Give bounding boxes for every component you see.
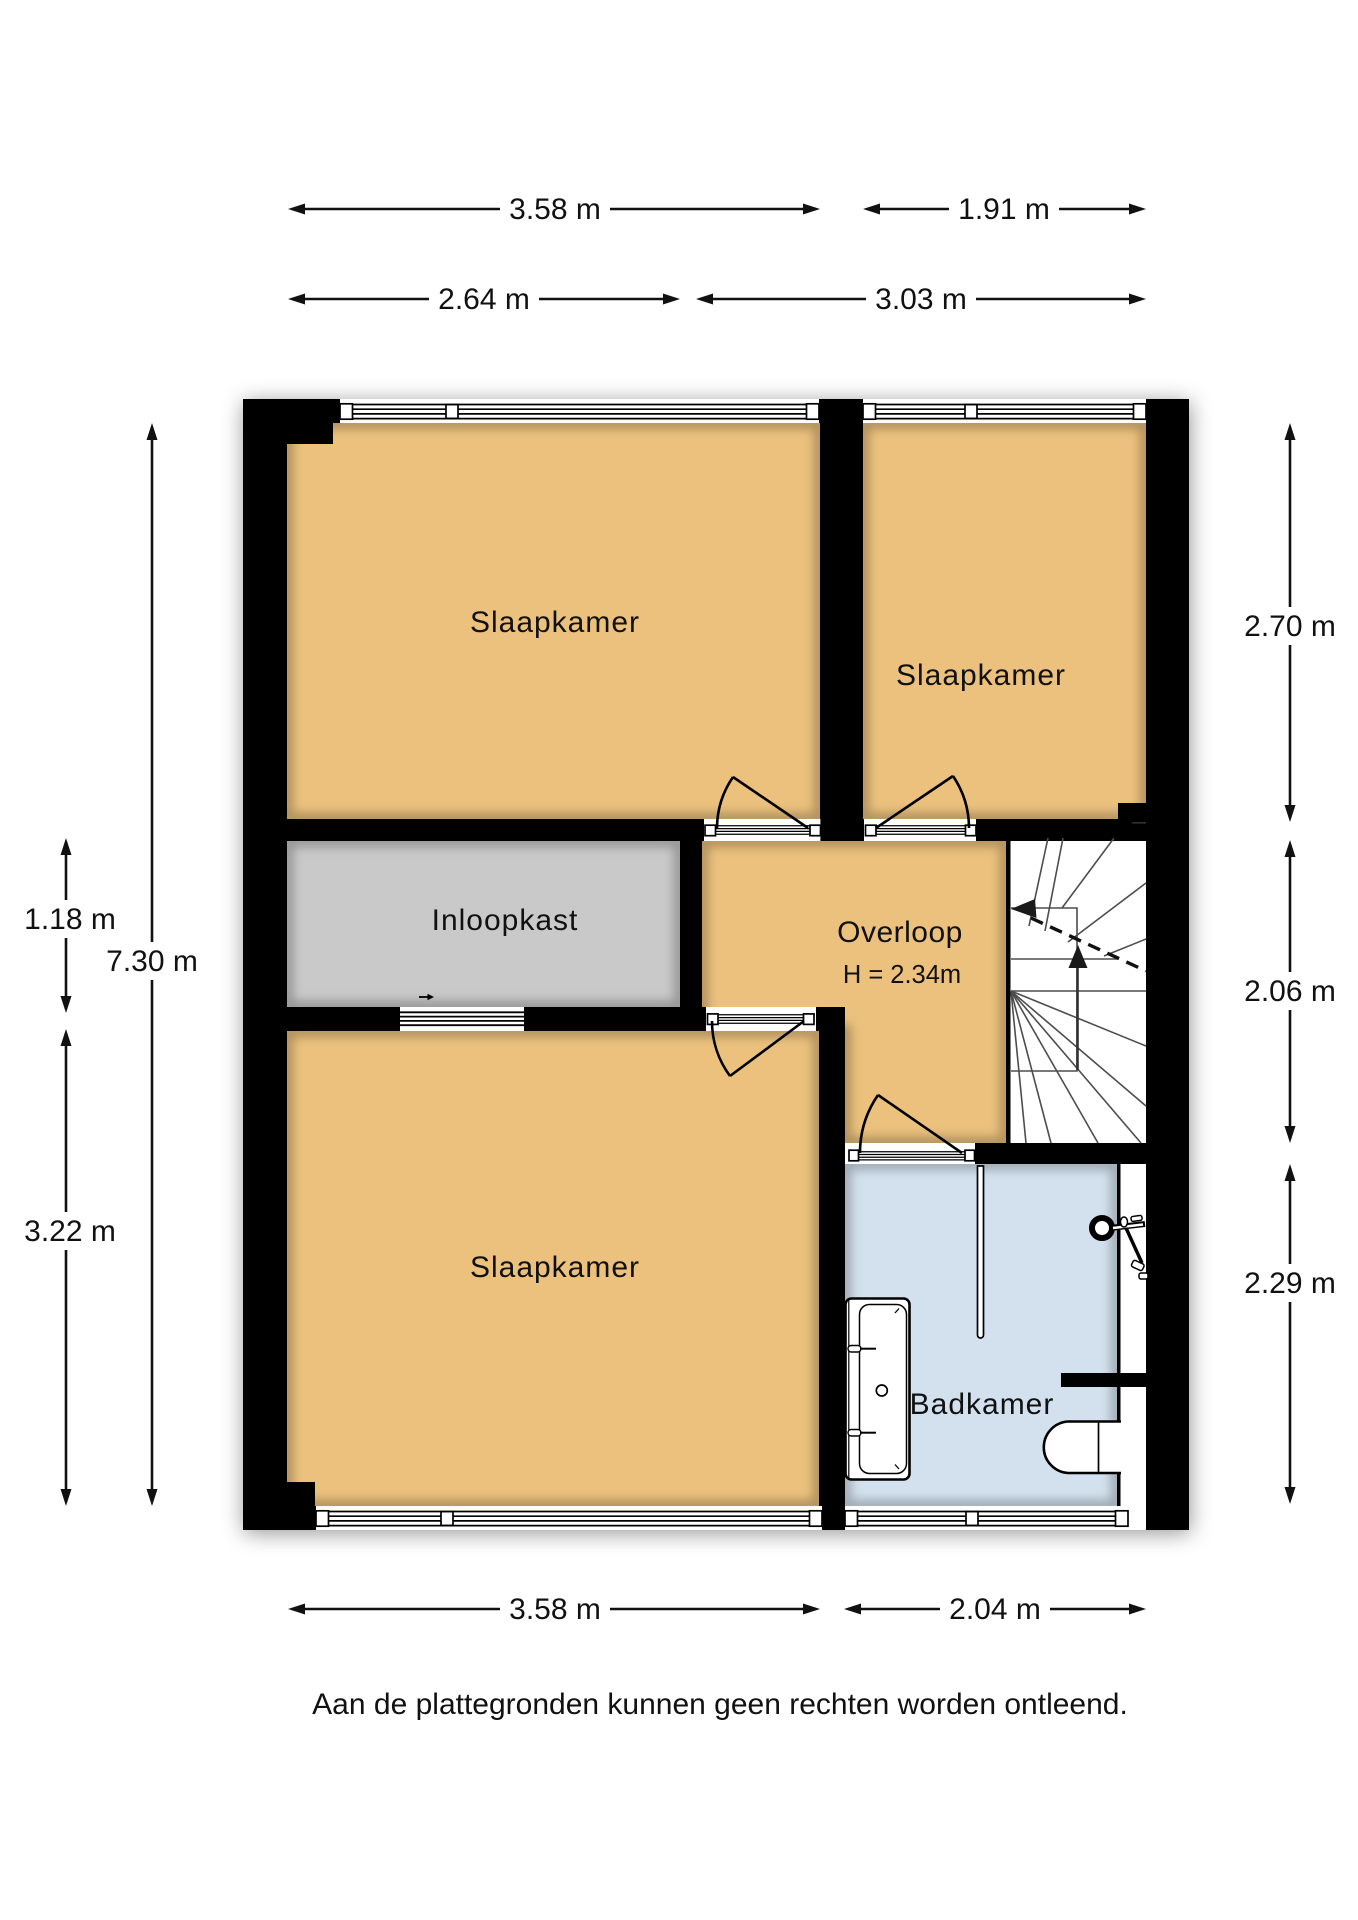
- svg-text:Overloop: Overloop: [837, 916, 963, 949]
- svg-text:7.30 m: 7.30 m: [106, 945, 198, 978]
- svg-text:Slaapkamer: Slaapkamer: [470, 1251, 640, 1284]
- svg-text:Inloopkast: Inloopkast: [432, 904, 579, 937]
- svg-text:1.18 m: 1.18 m: [24, 903, 116, 936]
- svg-text:2.70 m: 2.70 m: [1244, 610, 1336, 643]
- svg-text:Slaapkamer: Slaapkamer: [470, 606, 640, 639]
- svg-text:2.04 m: 2.04 m: [949, 1593, 1041, 1626]
- svg-text:3.58 m: 3.58 m: [509, 193, 601, 226]
- svg-text:Badkamer: Badkamer: [910, 1388, 1055, 1421]
- svg-text:Aan de plattegronden kunnen ge: Aan de plattegronden kunnen geen rechten…: [312, 1688, 1128, 1721]
- svg-text:2.06 m: 2.06 m: [1244, 975, 1336, 1008]
- svg-text:H = 2.34m: H = 2.34m: [843, 961, 961, 989]
- svg-text:3.58 m: 3.58 m: [509, 1593, 601, 1626]
- svg-text:2.64 m: 2.64 m: [438, 283, 530, 316]
- svg-text:Slaapkamer: Slaapkamer: [896, 659, 1066, 692]
- svg-text:2.29 m: 2.29 m: [1244, 1267, 1336, 1300]
- svg-text:3.03 m: 3.03 m: [875, 283, 967, 316]
- svg-text:3.22 m: 3.22 m: [24, 1215, 116, 1248]
- svg-text:1.91 m: 1.91 m: [958, 193, 1050, 226]
